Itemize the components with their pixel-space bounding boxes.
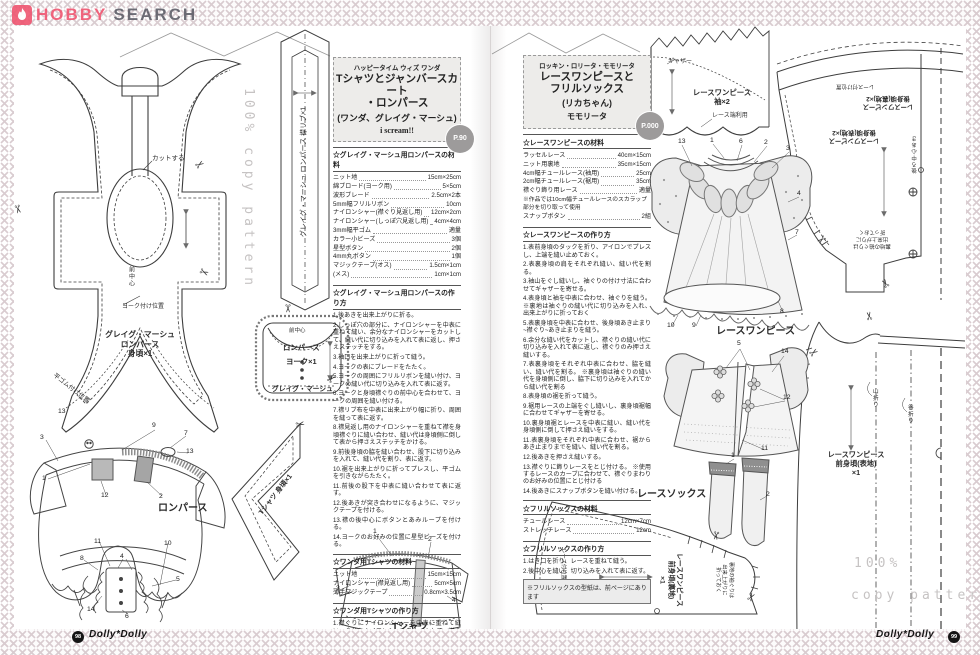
watermark-search-text: SEARCH [113,5,197,25]
dolly-dolly-logo-right: Dolly*Dolly [876,629,934,640]
watermark-hobby-text: HOBBY [36,5,107,25]
scanned-pattern-spread: ✂ ✂ ✂ ✂ ✂ ✂ ✂ ✂ ✂ ✂ ✂ ✂ 100% copy patter… [0,0,980,655]
cross-stitch-border [0,0,980,655]
page-number-badge-left: 98 [72,631,84,643]
page-number-badge-right: 99 [948,631,960,643]
hobby-search-watermark: HOBBY SEARCH [12,5,197,25]
hobby-search-flame-icon [12,5,32,25]
dolly-dolly-logo-left: Dolly*Dolly [89,629,147,640]
